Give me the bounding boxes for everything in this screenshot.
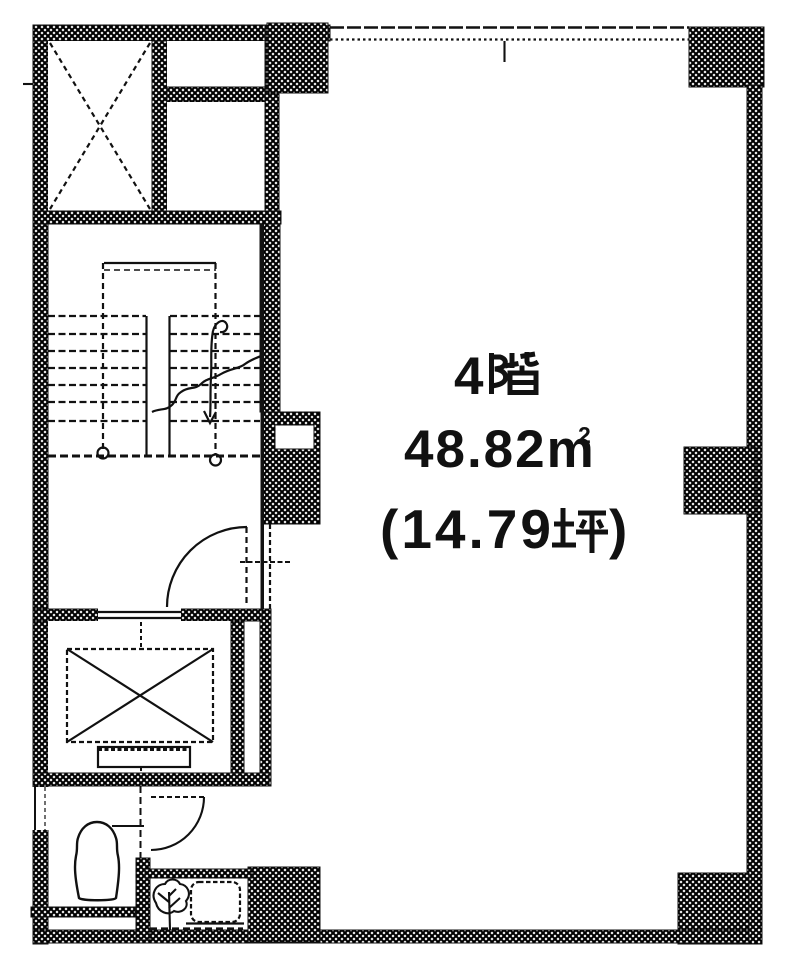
svg-text:48.82m: 48.82m: [404, 420, 596, 479]
svg-text:4: 4: [454, 347, 484, 406]
svg-text:): ): [609, 498, 627, 560]
svg-text:2: 2: [578, 422, 591, 448]
svg-text:(14.79: (14.79: [380, 498, 554, 560]
